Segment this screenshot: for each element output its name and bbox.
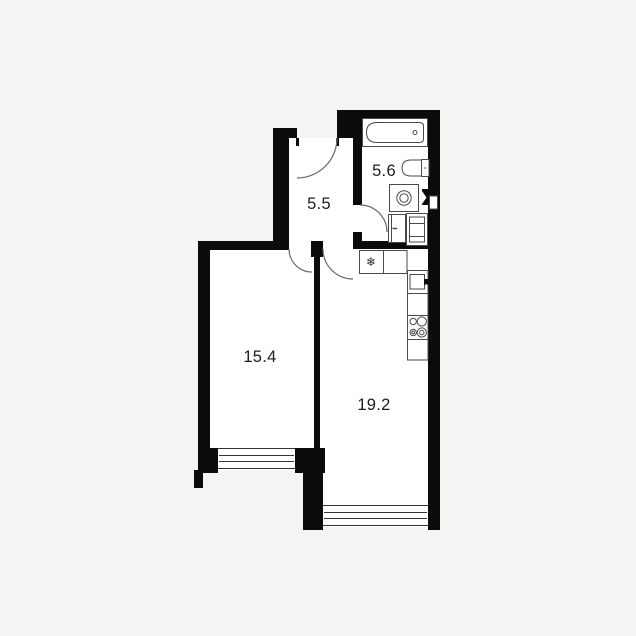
wall-partition-jamb (311, 241, 323, 257)
hallway-floor (289, 138, 353, 249)
wall-partition (314, 249, 320, 448)
wall-bedroom-top (198, 241, 289, 250)
kitchen-window (323, 505, 428, 527)
wall-left (198, 241, 210, 473)
kitchen-area-label: 19.2 (357, 397, 390, 414)
bathroom-door-opening (353, 205, 362, 232)
wall-window1-flank-left (198, 448, 218, 473)
vent-shaft (430, 196, 438, 209)
kitchen-faucet (424, 279, 433, 285)
bedroom-door-opening (289, 241, 311, 250)
bedroom-area-label: 15.4 (243, 349, 276, 366)
bathroom-area-label: 5.6 (372, 163, 396, 180)
kitchen-door-opening (323, 241, 353, 249)
floorplan-drawing (0, 0, 636, 636)
bathroom-sink (407, 214, 428, 246)
bathtub (363, 119, 428, 147)
hallway-area-label: 5.5 (307, 196, 331, 213)
wall-bathroom-door-jamb (353, 232, 362, 241)
bedroom-window (218, 448, 295, 470)
wall-bathroom-hallway (353, 138, 362, 205)
toilet (402, 160, 429, 177)
bathroom-cabinet (389, 215, 406, 243)
entrance-jamb-left (296, 138, 299, 146)
fridge-snowflake-icon: ❄ (366, 256, 376, 268)
duct-wedge (422, 189, 428, 205)
wall-window1-flank-right (295, 448, 325, 473)
wall-right (428, 110, 440, 530)
toilet-bowl (402, 160, 422, 176)
washing-machine (390, 185, 419, 212)
wall-kitchen-lower-left (303, 473, 323, 530)
wall-top-jog (337, 110, 362, 138)
wall-hallway-left (273, 128, 289, 250)
floorplan-canvas: 5.5 5.6 15.4 19.2 ❄ (0, 0, 636, 636)
bathtub-drain (413, 131, 417, 135)
